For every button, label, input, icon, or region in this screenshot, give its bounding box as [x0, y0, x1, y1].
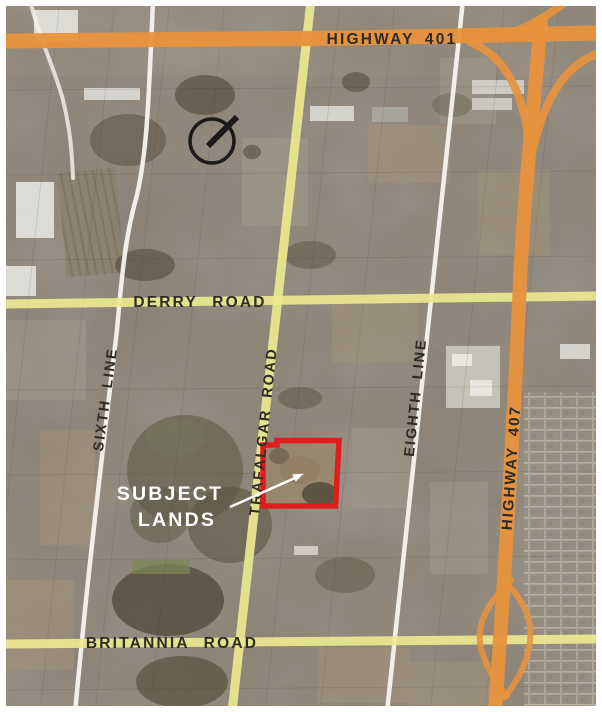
map-canvas: HIGHWAY 401 DERRY ROAD BRITANNIA ROAD TR…: [0, 0, 596, 712]
subject-lands: [263, 441, 339, 507]
location-map-figure: HIGHWAY 401 DERRY ROAD BRITANNIA ROAD TR…: [0, 0, 602, 712]
derry-road-label: DERRY ROAD: [133, 294, 266, 311]
subject-lands-label-line2: LANDS: [138, 509, 216, 531]
aerial-map: HIGHWAY 401 DERRY ROAD BRITANNIA ROAD TR…: [0, 0, 602, 712]
subject-lands-label-line1: SUBJECT: [117, 483, 223, 505]
highway-401-label: HIGHWAY 401: [327, 31, 458, 48]
britannia-road-label: BRITANNIA ROAD: [86, 635, 258, 652]
